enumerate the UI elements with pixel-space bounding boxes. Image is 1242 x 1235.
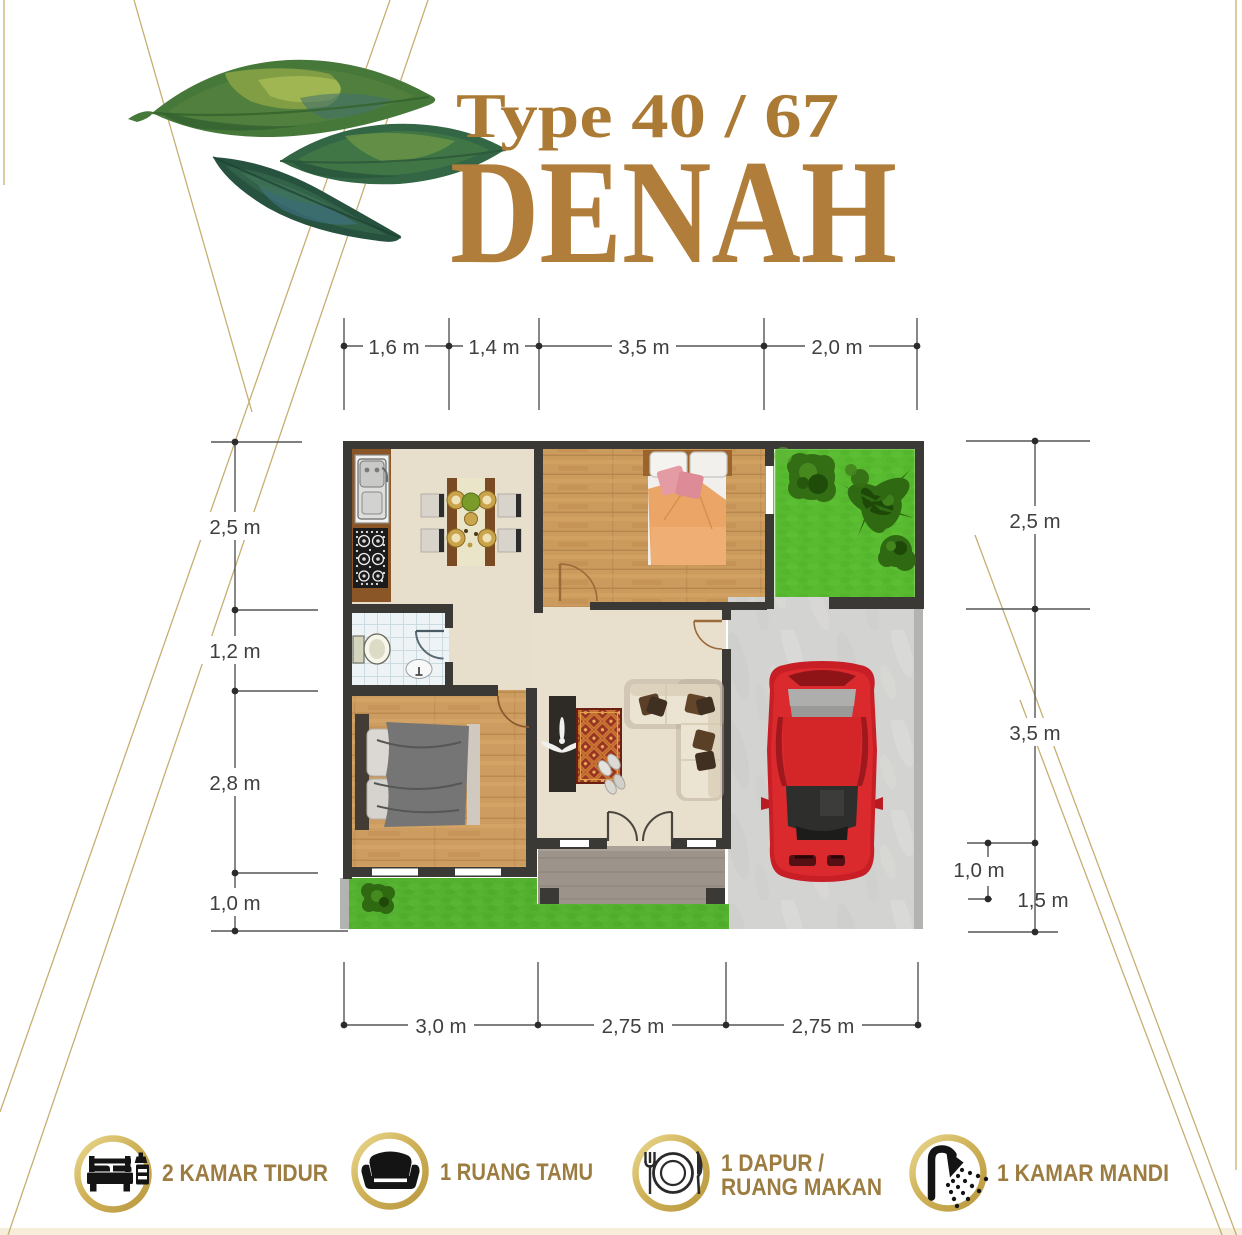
svg-text:1,2 m: 1,2 m	[209, 640, 260, 663]
svg-text:1,5 m: 1,5 m	[1017, 889, 1068, 912]
svg-text:2,5 m: 2,5 m	[1009, 510, 1060, 533]
svg-text:2,75 m: 2,75 m	[792, 1015, 855, 1038]
svg-text:2,5 m: 2,5 m	[209, 516, 260, 539]
svg-text:1,6 m: 1,6 m	[368, 336, 419, 359]
svg-text:1,0 m: 1,0 m	[953, 859, 1004, 882]
svg-text:2 KAMAR TIDUR: 2 KAMAR TIDUR	[162, 1160, 328, 1187]
svg-text:1,4 m: 1,4 m	[468, 336, 519, 359]
svg-text:2,8 m: 2,8 m	[209, 772, 260, 795]
svg-text:3,5 m: 3,5 m	[618, 336, 669, 359]
svg-text:1 KAMAR MANDI: 1 KAMAR MANDI	[997, 1160, 1169, 1187]
svg-text:1 RUANG TAMU: 1 RUANG TAMU	[440, 1159, 593, 1186]
svg-text:2,0 m: 2,0 m	[811, 336, 862, 359]
svg-text:DENAH: DENAH	[450, 130, 897, 295]
svg-text:2,75 m: 2,75 m	[602, 1015, 665, 1038]
svg-text:3,5 m: 3,5 m	[1009, 722, 1060, 745]
svg-text:1 DAPUR /: 1 DAPUR /	[721, 1150, 824, 1177]
svg-text:3,0 m: 3,0 m	[415, 1015, 466, 1038]
svg-text:1,0 m: 1,0 m	[209, 892, 260, 915]
svg-text:RUANG MAKAN: RUANG MAKAN	[721, 1174, 882, 1201]
